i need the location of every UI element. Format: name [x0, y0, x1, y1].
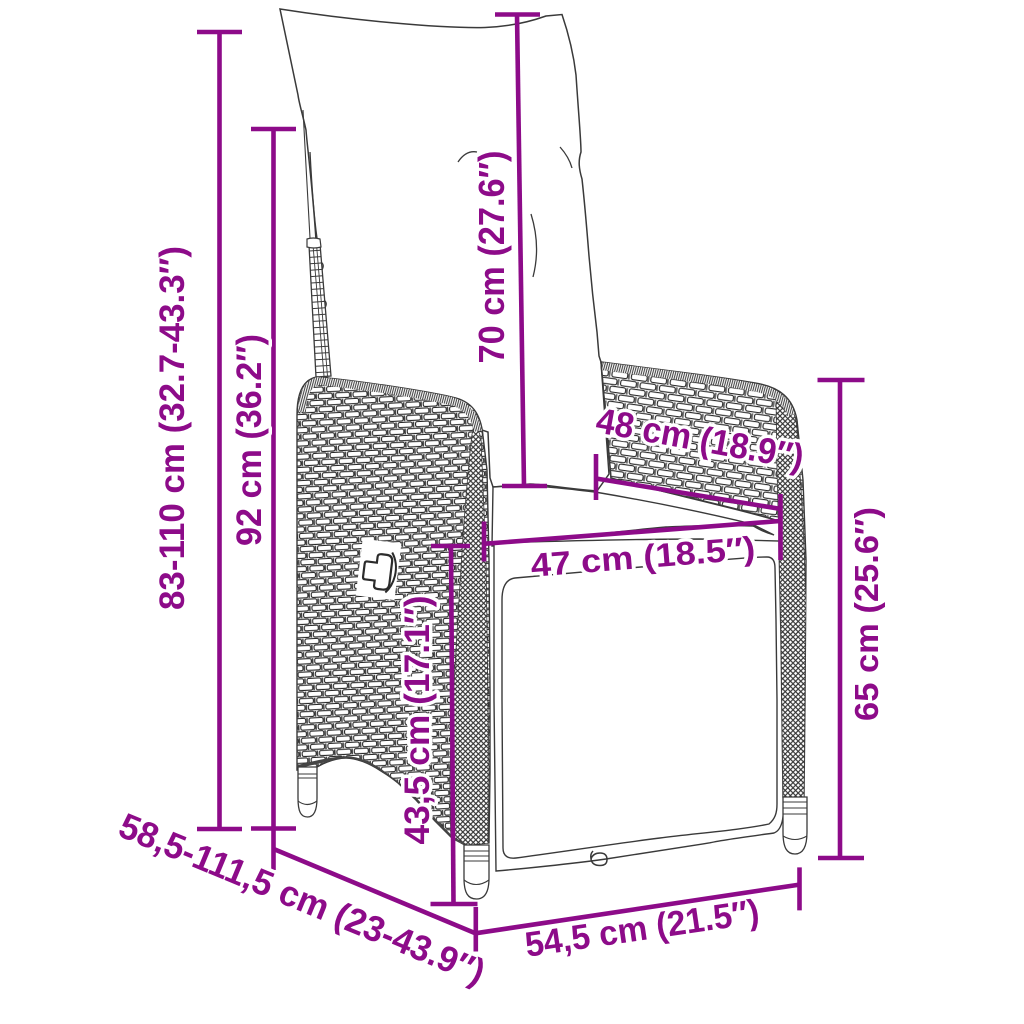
svg-text:70 cm (27.6″): 70 cm (27.6″)	[471, 151, 512, 364]
svg-text:83-110 cm (32.7-43.3″): 83-110 cm (32.7-43.3″)	[153, 246, 192, 610]
svg-text:65 cm (25.6″): 65 cm (25.6″)	[848, 507, 885, 721]
svg-text:43,5 cm (17.1″): 43,5 cm (17.1″)	[398, 596, 437, 845]
svg-text:92 cm (36.2″): 92 cm (36.2″)	[230, 334, 269, 546]
